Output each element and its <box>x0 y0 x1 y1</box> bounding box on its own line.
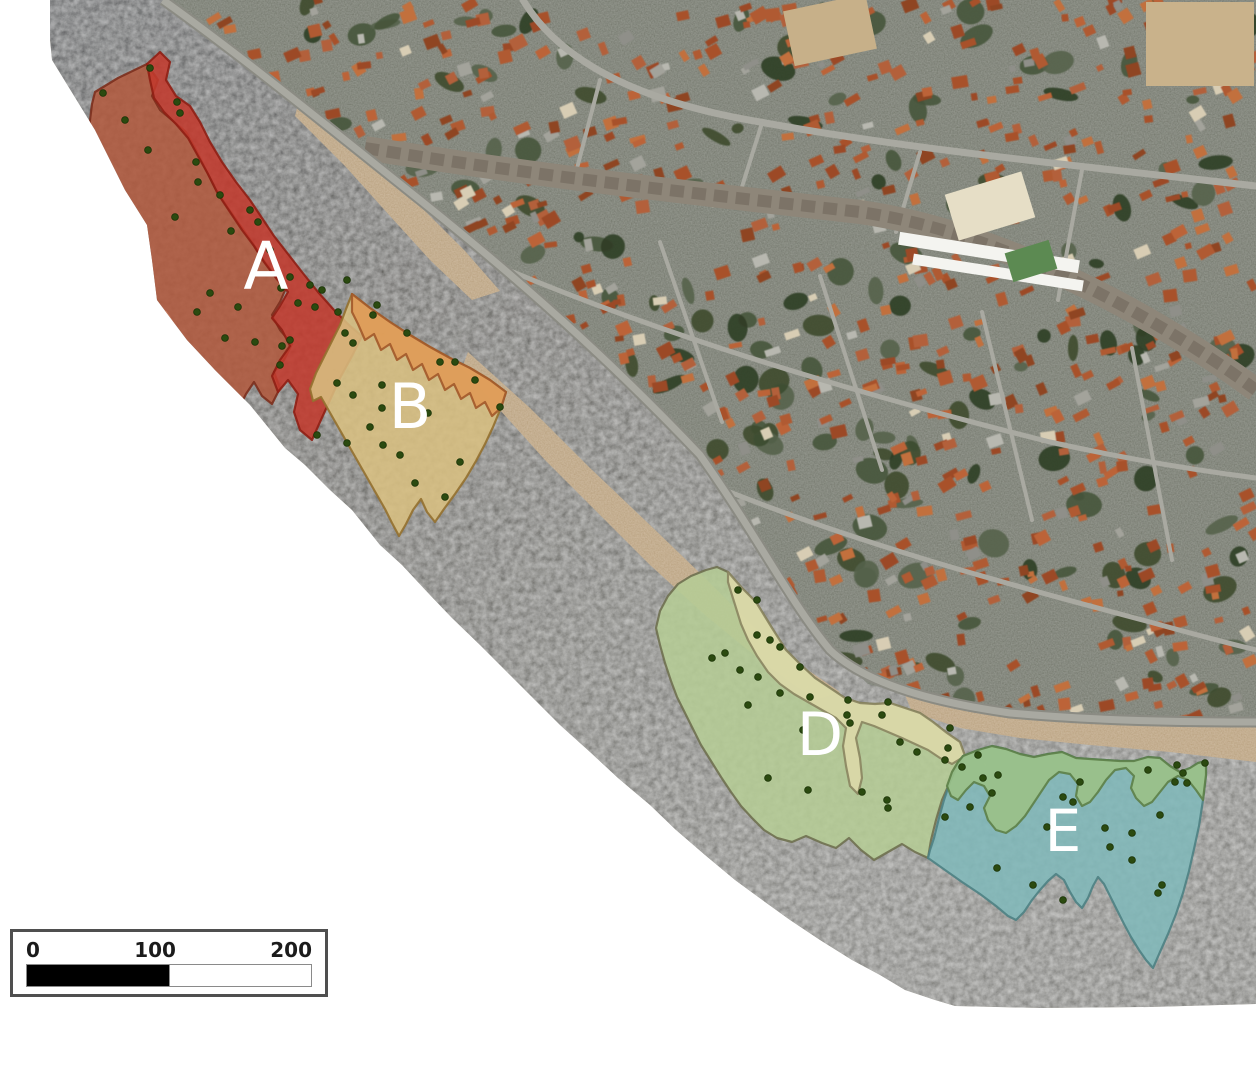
sample-dot <box>945 745 952 752</box>
sample-dot <box>1145 767 1152 774</box>
sample-dot <box>885 805 892 812</box>
sample-dot <box>754 597 761 604</box>
sample-dot <box>380 442 387 449</box>
sample-dot <box>847 720 854 727</box>
sample-dot <box>914 749 921 756</box>
sample-dot <box>497 404 504 411</box>
sample-dot <box>845 697 852 704</box>
map-figure: ABDE 0 100 200 <box>0 0 1256 1074</box>
sample-dot <box>805 787 812 794</box>
sample-dot <box>379 382 386 389</box>
sample-dot <box>745 702 752 709</box>
sample-dot <box>174 99 181 106</box>
sample-dot <box>312 304 319 311</box>
sample-dot <box>287 337 294 344</box>
sample-dot <box>412 480 419 487</box>
sample-dot <box>1172 779 1179 786</box>
sample-dot <box>350 340 357 347</box>
sample-dot <box>765 775 772 782</box>
sample-dot <box>145 147 152 154</box>
sample-dot <box>342 330 349 337</box>
sample-dot <box>252 339 259 346</box>
sample-dot <box>942 757 949 764</box>
sample-dot <box>797 664 804 671</box>
sample-dot <box>195 179 202 186</box>
sample-dot <box>709 655 716 662</box>
aerial-zonation-map: ABDE <box>0 0 1256 1074</box>
sample-dot <box>457 459 464 466</box>
sample-dot <box>374 302 381 309</box>
sample-dot <box>147 65 154 72</box>
sample-dot <box>397 452 404 459</box>
sample-dot <box>767 637 774 644</box>
sample-dot <box>1157 812 1164 819</box>
sample-dot <box>1184 780 1191 787</box>
sample-dot <box>879 712 886 719</box>
scale-bar-rule <box>26 964 312 987</box>
sample-dot <box>1129 830 1136 837</box>
sample-dot <box>989 790 996 797</box>
sample-dot <box>942 814 949 821</box>
sample-dot <box>1107 844 1114 851</box>
sample-dot <box>319 287 326 294</box>
sample-dot <box>228 228 235 235</box>
sample-dot <box>350 392 357 399</box>
sample-dot <box>437 359 444 366</box>
sample-dot <box>235 304 242 311</box>
sample-dot <box>344 277 351 284</box>
zone-label-D: D <box>797 700 843 770</box>
sample-dot <box>122 117 129 124</box>
scale-bar-labels: 0 100 200 <box>26 939 312 961</box>
sample-dot <box>335 309 342 316</box>
sample-dot <box>442 494 449 501</box>
sample-dot <box>295 300 302 307</box>
sample-dot <box>777 690 784 697</box>
sample-dot <box>885 699 892 706</box>
sample-dot <box>959 764 966 771</box>
zone-label-E: E <box>1045 797 1082 865</box>
sample-dot <box>844 712 851 719</box>
sample-dot <box>314 432 321 439</box>
sample-dot <box>452 359 459 366</box>
sample-dot <box>975 752 982 759</box>
sample-dot <box>1102 825 1109 832</box>
sample-dot <box>334 380 341 387</box>
sample-dot <box>379 405 386 412</box>
sample-dot <box>1129 857 1136 864</box>
landmark-building <box>1146 2 1254 86</box>
sample-dot <box>172 214 179 221</box>
sample-dot <box>177 110 184 117</box>
sample-dot <box>217 192 224 199</box>
sample-dot <box>307 282 314 289</box>
sample-dot <box>994 865 1001 872</box>
sample-dot <box>222 335 229 342</box>
sample-dot <box>884 797 891 804</box>
sample-dot <box>404 330 411 337</box>
sample-dot <box>737 667 744 674</box>
sample-dot <box>754 632 761 639</box>
sample-dot <box>344 440 351 447</box>
sample-dot <box>367 424 374 431</box>
sample-dot <box>247 207 254 214</box>
scale-bar-black-segment <box>27 965 169 986</box>
sample-dot <box>967 804 974 811</box>
scale-tick-100: 100 <box>134 939 176 961</box>
zone-label-A: A <box>243 228 288 305</box>
sample-dot <box>722 650 729 657</box>
scale-tick-200: 200 <box>270 939 312 961</box>
sample-dot <box>370 312 377 319</box>
sample-dot <box>279 343 286 350</box>
sample-dot <box>472 377 479 384</box>
sample-dot <box>255 219 262 226</box>
scale-bar-white-segment <box>169 965 311 986</box>
sample-dot <box>1030 882 1037 889</box>
scale-tick-0: 0 <box>26 939 40 961</box>
sample-dot <box>995 772 1002 779</box>
sample-dot <box>1159 882 1166 889</box>
sample-dot <box>859 789 866 796</box>
sample-dot <box>777 644 784 651</box>
sample-dot <box>1155 890 1162 897</box>
sample-dot <box>1180 770 1187 777</box>
sample-dot <box>193 159 200 166</box>
sample-dot <box>897 739 904 746</box>
sample-dot <box>1202 760 1209 767</box>
sample-dot <box>1077 779 1084 786</box>
sample-dot <box>277 362 284 369</box>
sample-dot <box>980 775 987 782</box>
scale-bar: 0 100 200 <box>10 929 328 997</box>
sample-dot <box>100 90 107 97</box>
sample-dot <box>755 674 762 681</box>
sample-dot <box>194 309 201 316</box>
sample-dot <box>207 290 214 297</box>
zone-label-B: B <box>389 370 432 443</box>
sample-dot <box>947 725 954 732</box>
sample-dot <box>1174 762 1181 769</box>
sample-dot <box>735 587 742 594</box>
sample-dot <box>1060 897 1067 904</box>
